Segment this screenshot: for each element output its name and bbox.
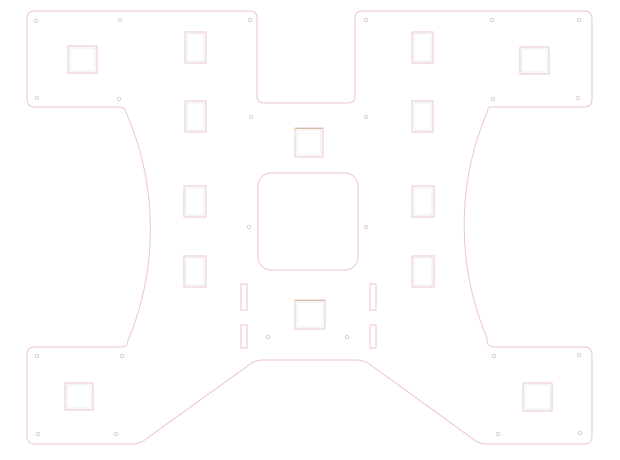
- cutout-slot: [241, 325, 247, 348]
- cutout-column-rect-inner-line: [414, 188, 432, 215]
- cutout-column-rect: [184, 186, 206, 217]
- cad-drawing-canvas: [0, 0, 620, 460]
- cutout-corner-square-inner-line: [67, 385, 91, 408]
- cutout-corner-square: [65, 383, 93, 410]
- plate-outline: [27, 11, 592, 444]
- cutout-column-rect: [185, 101, 206, 132]
- cutout-center-square-inner-line: [297, 302, 323, 327]
- drill-hole: [117, 97, 120, 100]
- plate-cut-drawing: [0, 0, 620, 460]
- drill-hole: [576, 96, 579, 99]
- cutout-column-rect: [412, 256, 434, 287]
- drill-hole: [247, 225, 250, 228]
- cutout-corner-square-inner-line: [522, 49, 547, 72]
- drill-hole: [490, 18, 493, 21]
- cutout-slot: [241, 284, 247, 310]
- cutout-corner-square: [523, 383, 552, 411]
- drill-hole: [578, 431, 581, 434]
- drill-hole: [364, 225, 367, 228]
- drill-hole: [266, 335, 269, 338]
- drill-hole: [36, 432, 39, 435]
- drill-hole: [35, 354, 38, 357]
- drill-hole: [114, 432, 117, 435]
- drill-hole: [345, 335, 348, 338]
- cutout-column-rect-inner-line: [186, 188, 204, 215]
- cutout-column-rect: [184, 256, 206, 287]
- cutout-corner-square: [520, 47, 549, 74]
- cutout-column-rect: [185, 32, 206, 63]
- cutout-column-rect-inner-line: [187, 34, 204, 61]
- drill-hole: [249, 115, 252, 118]
- drill-hole: [120, 354, 123, 357]
- cutout-column-rect-inner-line: [187, 103, 204, 130]
- drill-hole: [364, 115, 367, 118]
- drill-hole: [118, 18, 121, 21]
- cutout-center-square-inner-line: [297, 130, 321, 155]
- drill-hole: [492, 354, 495, 357]
- cutout-column-rect-inner-line: [414, 258, 432, 285]
- cutout-column-rect: [412, 186, 434, 217]
- cutout-center-square: [295, 300, 325, 329]
- cutout-column-rect-inner-line: [414, 34, 431, 61]
- drill-hole: [491, 97, 494, 100]
- cutout-corner-square-inner-line: [525, 385, 550, 409]
- cutout-column-rect-inner-line: [414, 103, 431, 130]
- drill-hole: [577, 353, 580, 356]
- drill-hole: [364, 18, 367, 21]
- cutout-column-rect-inner-line: [186, 258, 204, 285]
- cutout-corner-square-inner-line: [70, 48, 95, 71]
- cutout-slot: [370, 325, 376, 348]
- drill-hole: [248, 18, 251, 21]
- drill-hole: [35, 96, 38, 99]
- drill-hole: [34, 19, 37, 22]
- cutout-column-rect: [412, 32, 433, 63]
- cutout-center-square: [295, 128, 323, 157]
- drill-hole: [577, 18, 580, 21]
- drill-hole: [496, 432, 499, 435]
- cutout-center-window: [258, 173, 358, 270]
- cutout-column-rect: [412, 101, 433, 132]
- cutout-corner-square: [68, 46, 97, 73]
- cutout-slot: [370, 284, 376, 310]
